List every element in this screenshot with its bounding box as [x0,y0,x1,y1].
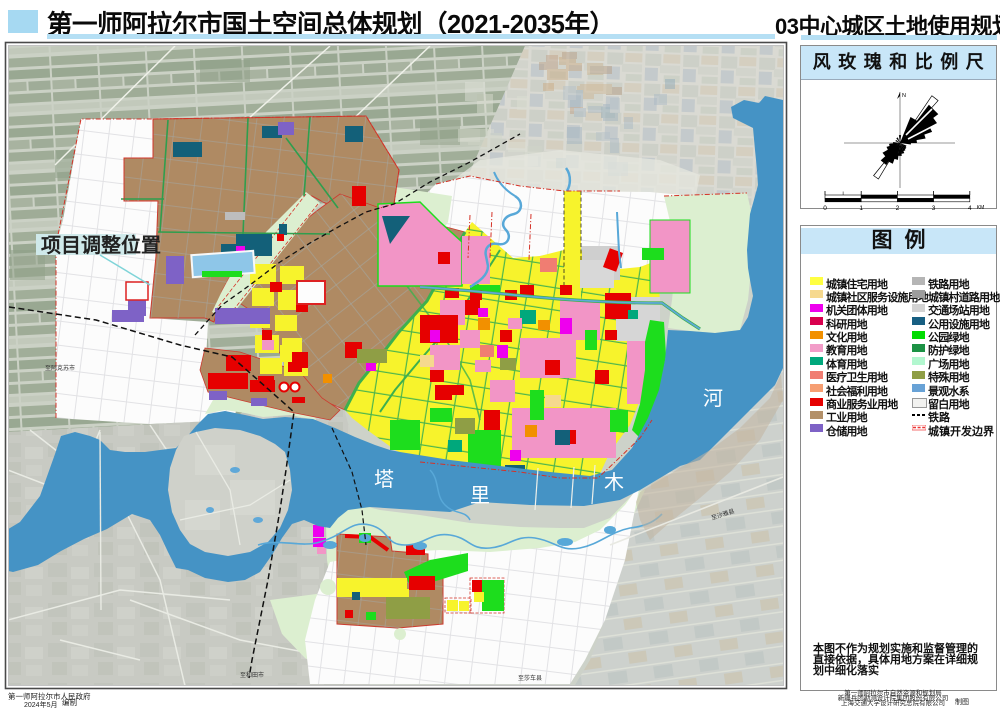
svg-text:至阿克苏市: 至阿克苏市 [45,364,75,372]
svg-text:里: 里 [470,485,490,507]
svg-text:3: 3 [932,205,936,212]
svg-text:4: 4 [968,205,972,212]
svg-text:至和田市: 至和田市 [240,671,264,679]
svg-text:1: 1 [859,205,863,212]
svg-text:至莎车县: 至莎车县 [518,674,542,682]
svg-text:N: N [902,93,906,99]
svg-text:2: 2 [896,205,900,212]
svg-text:KM: KM [977,205,985,211]
svg-text:木: 木 [604,471,624,494]
svg-text:0: 0 [823,205,827,212]
svg-text:河: 河 [703,387,723,410]
svg-text:塔: 塔 [374,468,394,491]
svg-text:项目调整位置: 项目调整位置 [41,233,161,257]
